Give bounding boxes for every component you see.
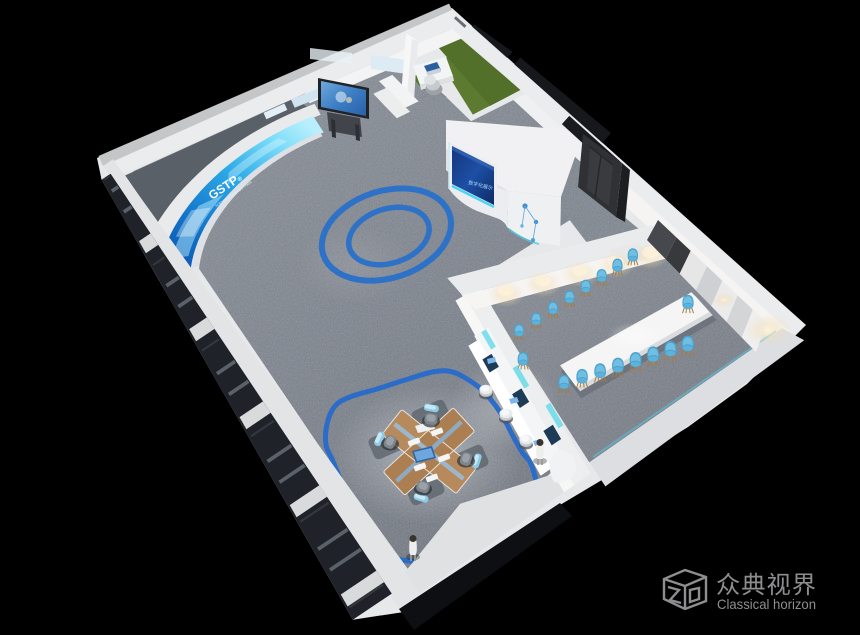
svg-text:Classical horizon: Classical horizon [717, 596, 816, 612]
svg-text:众典视界: 众典视界 [716, 572, 817, 599]
